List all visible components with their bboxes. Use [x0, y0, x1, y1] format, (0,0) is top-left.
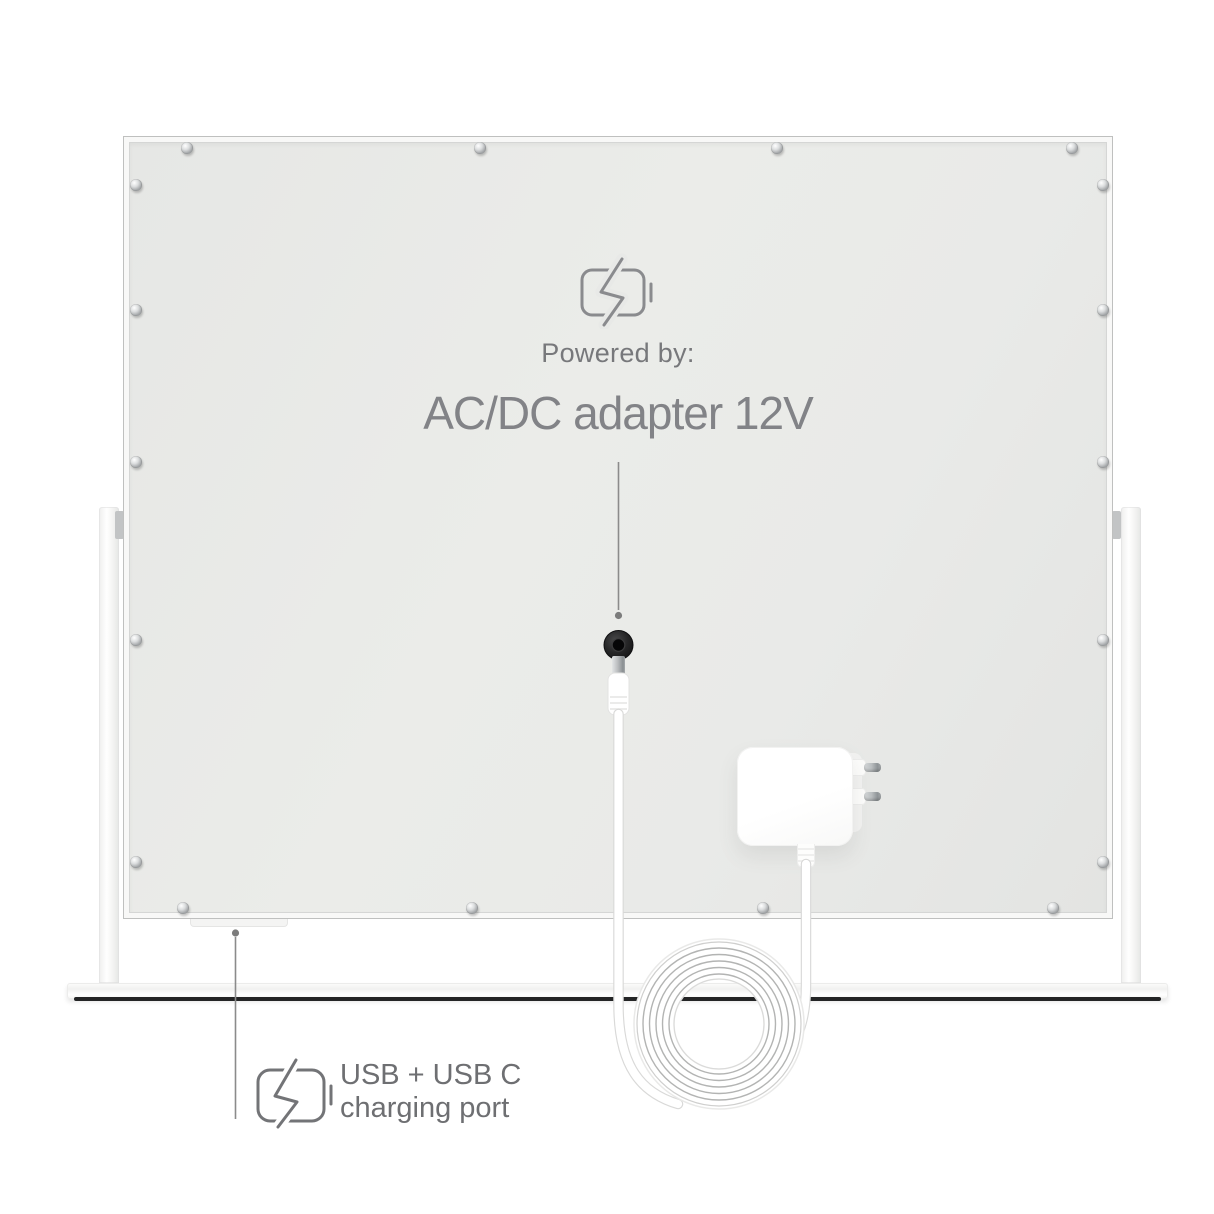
power-adapter-body: [737, 747, 853, 846]
screw: [1047, 902, 1059, 914]
screw: [474, 142, 486, 154]
battery-charging-icon: [252, 1056, 336, 1130]
screw: [130, 304, 142, 316]
screw: [1097, 634, 1109, 646]
usb-label-line2: charging port: [340, 1092, 521, 1125]
screw: [130, 856, 142, 868]
stand-post-left: [99, 507, 119, 983]
screw: [130, 179, 142, 191]
usb-port-label: USB + USB C charging port: [340, 1059, 521, 1125]
stand-base-strip: [74, 997, 1161, 1001]
screw: [181, 142, 193, 154]
pointer-dot-usb: [232, 929, 239, 936]
screw: [1066, 142, 1078, 154]
powered-by-heading: Powered by:: [123, 338, 1113, 369]
usb-label-line1: USB + USB C: [340, 1059, 521, 1092]
cable-coil: [634, 939, 804, 1109]
product-image: Powered by: AC/DC adapter 12V: [0, 0, 1214, 1214]
usb-port-cover: [190, 919, 288, 927]
adapter-pin-bottom: [864, 792, 881, 801]
screw: [1097, 856, 1109, 868]
screw: [1097, 456, 1109, 468]
screw: [771, 142, 783, 154]
adapter-strain-relief: [797, 844, 815, 868]
adapter-title: AC/DC adapter 12V: [123, 386, 1113, 440]
screw: [466, 902, 478, 914]
screw: [177, 902, 189, 914]
stand-hinge-right: [1112, 511, 1121, 539]
screw: [757, 902, 769, 914]
screw: [130, 456, 142, 468]
screw: [1097, 179, 1109, 191]
screw: [130, 634, 142, 646]
stand-post-right: [1121, 507, 1141, 983]
stand-base: [67, 983, 1168, 999]
battery-charging-icon: [577, 253, 659, 329]
screw: [1097, 304, 1109, 316]
adapter-pin-top: [864, 763, 881, 772]
